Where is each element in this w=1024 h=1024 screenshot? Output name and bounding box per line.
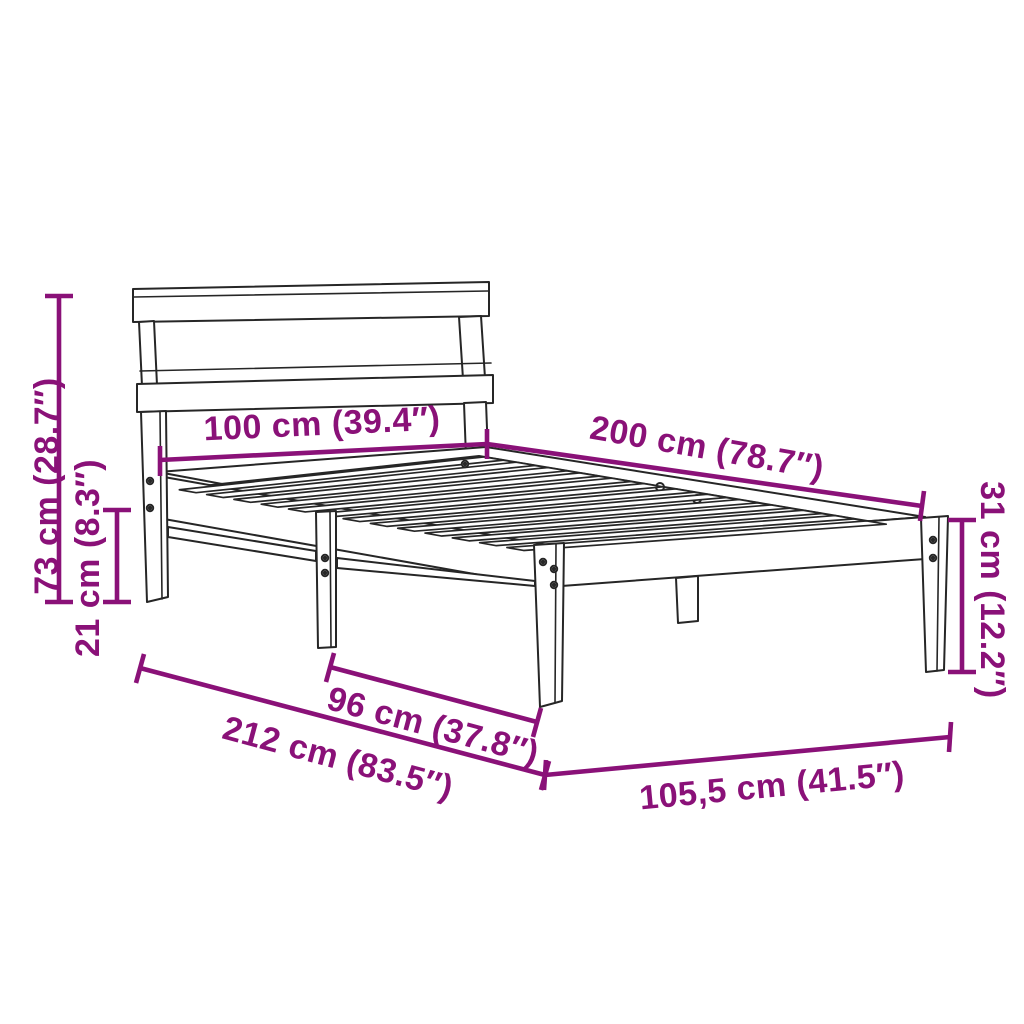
dimension-label: 21 cm (8.3″) xyxy=(69,459,107,657)
headboard-post-left xyxy=(139,321,157,386)
headboard-post-right xyxy=(459,316,485,379)
screw-dot xyxy=(464,463,466,465)
leg-foot-front xyxy=(534,543,564,707)
dimension-under-bed-clearance: 21 cm (8.3″) xyxy=(69,459,131,657)
leg-center-front-edge xyxy=(330,512,331,647)
screw-dot xyxy=(932,557,934,559)
dimension-overall-width: 105,5 cm (41.5″) xyxy=(544,722,951,817)
screw-dot xyxy=(149,480,151,482)
headboard xyxy=(133,282,493,412)
screw-dot xyxy=(553,584,555,586)
dimension-label: 31 cm (12.2″) xyxy=(973,481,1011,698)
screw-dot xyxy=(149,507,151,509)
dimension-overall-height: 73 cm (28.7″) xyxy=(28,296,73,602)
product-dimension-diagram: 73 cm (28.7″) 21 cm (8.3″) 100 cm (39.4″… xyxy=(0,0,1024,1024)
screw-dot xyxy=(542,561,544,563)
headboard-cap xyxy=(133,282,489,322)
dimension-label: 73 cm (28.7″) xyxy=(28,377,66,594)
screw-dot xyxy=(324,557,326,559)
diagram-svg: 73 cm (28.7″) 21 cm (8.3″) 100 cm (39.4″… xyxy=(0,0,1024,1024)
dimension-side-height: 31 cm (12.2″) xyxy=(948,481,1011,698)
leg-center-front xyxy=(316,511,336,648)
screw-dot xyxy=(324,572,326,574)
leg-head-front xyxy=(141,411,168,602)
screw-dot xyxy=(553,568,555,570)
screw-dot xyxy=(932,539,934,541)
leg-center-back xyxy=(676,576,698,623)
headboard-panel-edge xyxy=(140,363,491,371)
